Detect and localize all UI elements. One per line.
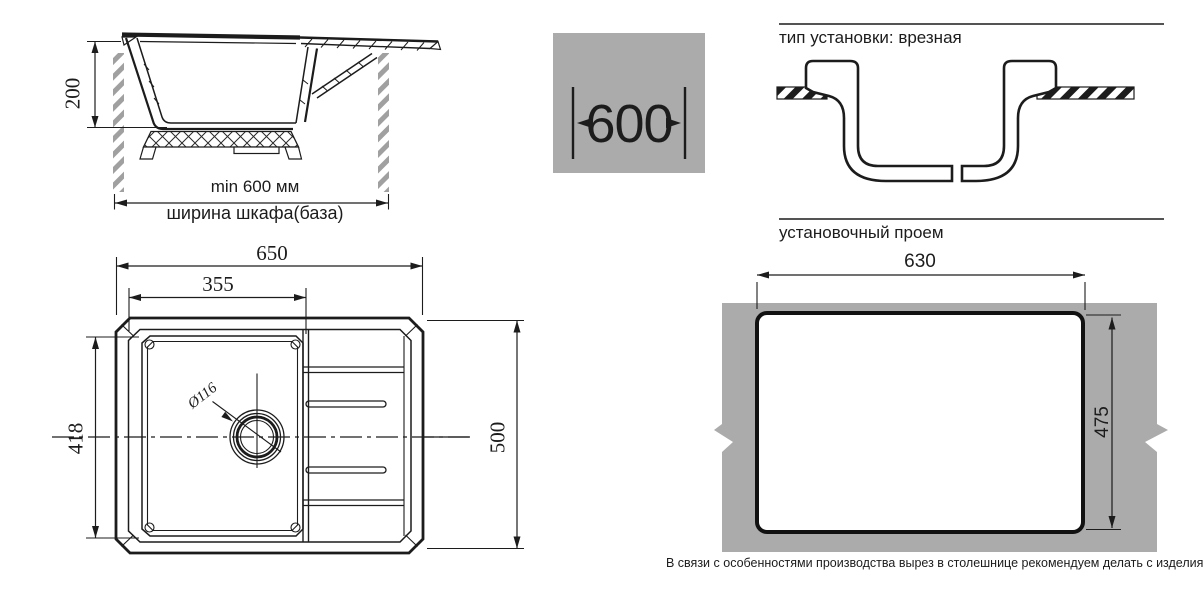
cutout-opening	[757, 313, 1083, 532]
diagram-linework	[0, 0, 1203, 606]
dimension-depth-200	[87, 42, 167, 128]
sink-rim-profile-right	[962, 61, 1056, 181]
cabinet-wall-right-hatch	[378, 53, 389, 192]
badge-width-value: 600	[553, 93, 705, 155]
installation-type-drawing	[777, 24, 1164, 219]
bowl-depth-dimension: 418	[64, 409, 89, 469]
sink-rim-profile-left	[806, 61, 952, 181]
cabinet-width-label: ширина шкафа(база)	[145, 203, 365, 224]
cutout-heading: установочный проем	[779, 223, 944, 243]
cabinet-depth-dimension: 200	[61, 69, 86, 119]
overall-depth-dimension: 500	[486, 408, 511, 468]
min-width-label: min 600 мм	[185, 177, 325, 197]
cutout-height-dimension: 475	[1092, 392, 1114, 452]
production-note: В связи с особенностями производства выр…	[666, 556, 1203, 570]
sink-top-view	[52, 257, 524, 553]
drain-boss	[234, 147, 279, 154]
cutout-width-dimension: 630	[890, 251, 950, 273]
overall-width-dimension: 650	[242, 241, 302, 266]
installation-type-heading: тип установки: врезная	[779, 28, 962, 48]
cabinet-wall-left-hatch	[113, 53, 124, 192]
bowl-width-dimension: 355	[188, 272, 248, 297]
sink-outer-edge	[116, 318, 423, 553]
sink-installation-diagram: 200 min 600 мм ширина шкафа(база) 600 ти…	[0, 0, 1203, 606]
